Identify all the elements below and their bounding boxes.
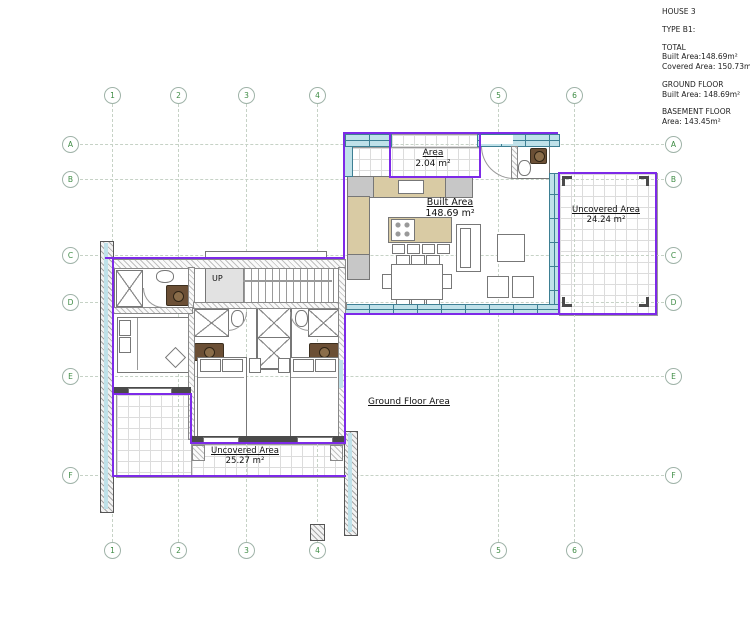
grid-bubble-bottom-5: 5 [490,542,507,559]
wc-vanity [530,148,547,164]
ground-floor-built-area: Built Area: 148.69m² [662,90,750,100]
stairs-up-label: UP [212,274,232,283]
pillow [222,359,243,372]
grid-bubble-left-a: A [62,136,79,153]
grid-bubble-right-f: F [665,467,682,484]
porch-area-label: Area 2.04 m² [389,148,477,169]
grid-bubble-top-2: 2 [170,87,187,104]
entrance-door-gap [481,135,513,144]
grid-bubble-left-e: E [62,368,79,385]
grid-bubble-right-d: D [665,294,682,311]
bed-blanket-line [198,377,244,378]
grid-bubble-top-6: 6 [566,87,583,104]
ground-floor-area-label: Ground Floor Area [368,397,462,408]
ensuite1-vanity [166,285,189,306]
uncovered-left-title: Uncovered Area [195,446,295,456]
bar-stool [392,244,405,254]
grid-bubble-bottom-2: 2 [170,542,187,559]
ground-floor-heading: GROUND FLOOR [662,80,750,90]
project-title: HOUSE 3 [662,7,750,17]
boundary-living-south [345,313,558,315]
pillow [200,359,221,372]
built-area-value: 148.69 m² [400,208,500,219]
south-retaining-wall-core [348,433,352,532]
pillow [119,337,131,353]
ensuite1-shower [116,270,143,307]
total-heading: TOTAL [662,43,750,53]
kitchen-cabinet [347,176,375,198]
total-built-area: Built Area:148.69m² [662,52,750,62]
west-retaining-wall-core [104,243,108,509]
type-label: TYPE B1: [662,25,750,35]
bar-stool [437,244,450,254]
porch-area-value: 2.04 m² [389,159,477,170]
basement-area: Area: 143.45m² [662,117,750,127]
armchair [487,276,509,298]
grid-line-row-e [80,376,664,377]
armchair [512,276,534,298]
grid-bubble-left-f: F [62,467,79,484]
wc-sink-bowl [534,151,545,162]
pillow [315,359,336,372]
pillow [119,320,131,336]
bed-blanket-line [291,377,337,378]
bedroom3-east-window [339,360,343,388]
coffee-table [497,234,525,262]
uncovered-area-right-label: Uncovered Area 24.24 m² [560,205,652,225]
bar-stool [407,244,420,254]
wc-toilet [518,160,531,176]
corridor-south-wall [193,302,347,309]
boundary-bedroom-north [105,257,345,259]
wardrobe-panel [257,307,291,339]
terrace-pilaster [330,445,343,461]
grid-bubble-bottom-3: 3 [238,542,255,559]
left-terrace-tiles [116,394,193,478]
grid-bubble-left-d: D [62,294,79,311]
grid-bubble-top-1: 1 [104,87,121,104]
title-block: HOUSE 3 TYPE B1: TOTAL Built Area:148.69… [662,7,750,127]
stair-rail [243,280,332,282]
bed-blanket-line [137,318,138,370]
total-covered-area: Covered Area: 150.73m² [662,62,750,72]
kitchen-counter-side [347,196,370,256]
grid4-wall-pier [310,524,325,541]
bar-stool [422,244,435,254]
kitchen-cabinet [445,176,473,198]
basement-heading: BASEMENT FLOOR [662,107,750,117]
living-west-wall [344,146,353,177]
boundary-terrace-south [112,475,346,477]
sink-bowl [173,291,184,302]
grid-bubble-bottom-1: 1 [104,542,121,559]
dining-chair [411,255,425,265]
built-area-label: Built Area 148.69 m² [400,197,500,219]
ensuite2-shower [194,309,229,337]
right-terrace-boundary [558,172,657,315]
boundary-bedroom23-south [190,442,346,444]
porch-area-title: Area [389,148,477,159]
dining-chair [382,274,392,289]
dining-chair [426,255,440,265]
stove-cooktop [391,219,415,241]
ensuite3-shower [308,309,339,337]
ensuite1-south-wall [113,307,193,314]
bedroom-wing-north-wall [113,259,346,269]
dining-chair [396,255,410,265]
boundary-top [345,132,558,134]
uncovered-area-left-label: Uncovered Area 25.27 m² [195,446,295,466]
boundary-west [112,257,114,477]
boundary-east-of-bedrooms [344,313,346,444]
grid-line-col-6 [574,104,575,542]
nightstand [249,358,261,373]
grid-bubble-top-5: 5 [490,87,507,104]
grid-bubble-right-c: C [665,247,682,264]
boundary-living-west [343,132,345,259]
grid-bubble-left-b: B [62,171,79,188]
grid-bubble-right-a: A [665,136,682,153]
dining-table [391,264,443,300]
grid-bubble-bottom-4: 4 [309,542,326,559]
kitchen-sink [398,180,424,194]
boundary-terrace-step [190,393,192,443]
floor-plan-canvas: HOUSE 3 TYPE B1: TOTAL Built Area:148.69… [0,0,750,629]
nightstand [278,358,290,373]
pillow [293,359,314,372]
grid-bubble-right-b: B [665,171,682,188]
grid-bubble-top-3: 3 [238,87,255,104]
uncovered-right-value: 24.24 m² [560,215,652,225]
wc-partition-wall [511,146,518,179]
grid-bubble-right-e: E [665,368,682,385]
kitchen-fridge [347,254,370,280]
uncovered-left-value: 25.27 m² [195,456,295,466]
grid-bubble-top-4: 4 [309,87,326,104]
sofa-cushion [460,228,471,268]
dining-chair [442,274,452,289]
uncovered-right-title: Uncovered Area [560,205,652,215]
boundary-bedroom1-south [112,393,192,395]
ensuite1-toilet [156,270,174,283]
built-area-title: Built Area [400,197,500,208]
grid-bubble-left-c: C [62,247,79,264]
grid-bubble-bottom-6: 6 [566,542,583,559]
